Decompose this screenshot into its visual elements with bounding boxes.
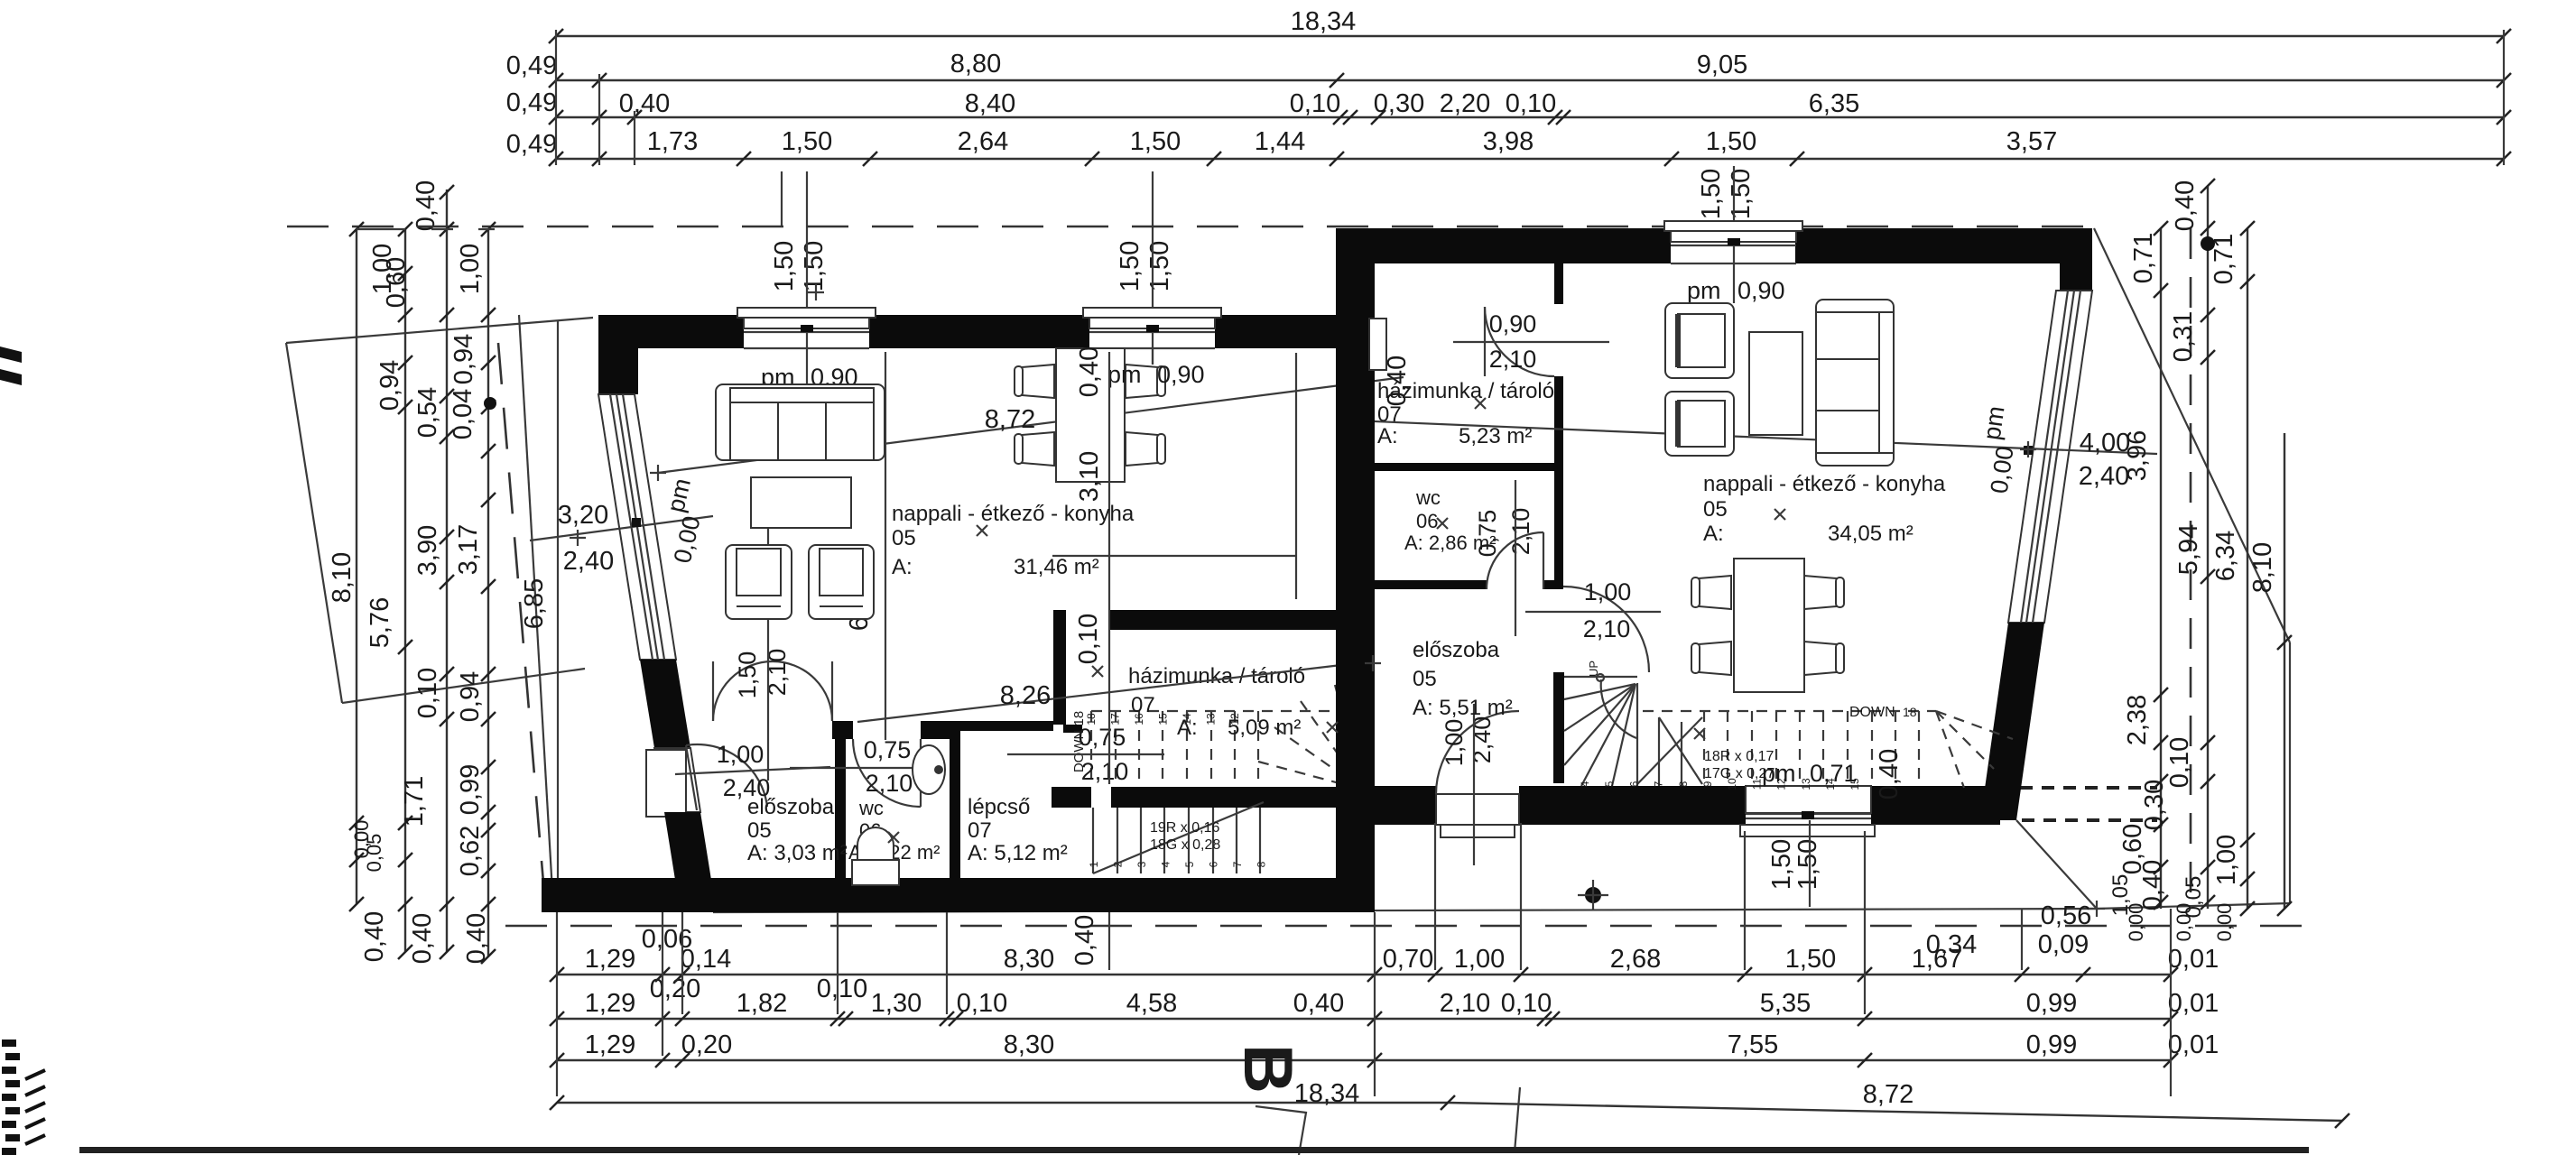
- svg-text:7,55: 7,55: [1728, 1030, 1778, 1059]
- svg-text:lépcső: lépcső: [968, 795, 1030, 819]
- svg-text:6,35: 6,35: [1809, 89, 1859, 118]
- svg-text:2,10: 2,10: [1489, 346, 1537, 373]
- svg-text:3,98: 3,98: [1483, 127, 1534, 156]
- svg-text:0,00: 0,00: [2213, 903, 2236, 942]
- svg-text:5: 5: [1603, 781, 1616, 787]
- svg-text:0,04: 0,04: [449, 389, 477, 439]
- svg-text:4: 4: [1579, 781, 1591, 787]
- svg-text:0,09: 0,09: [2038, 930, 2089, 959]
- svg-text:1,00: 1,00: [1441, 719, 1468, 767]
- svg-text:7: 7: [1231, 861, 1244, 867]
- svg-text:0,49: 0,49: [506, 130, 557, 159]
- svg-text:1,29: 1,29: [585, 945, 635, 974]
- svg-text:0,60: 0,60: [382, 257, 411, 308]
- svg-text:0,10: 0,10: [1290, 89, 1340, 118]
- svg-text:0,01: 0,01: [2168, 1030, 2219, 1059]
- svg-text:3,10: 3,10: [1075, 451, 1104, 502]
- svg-text:0,10: 0,10: [413, 668, 442, 718]
- svg-text:1,00: 1,00: [456, 244, 485, 294]
- svg-text:8,80: 8,80: [950, 50, 1001, 79]
- svg-text:A:: A:: [1703, 522, 1724, 546]
- svg-text:1,00: 1,00: [2212, 835, 2241, 885]
- svg-text:2,10: 2,10: [866, 770, 913, 797]
- svg-text:8: 8: [1677, 781, 1690, 787]
- svg-text:07: 07: [1131, 693, 1155, 717]
- svg-text:05: 05: [747, 818, 772, 843]
- svg-text:0,71: 0,71: [1810, 760, 1858, 787]
- svg-text:4: 4: [1160, 861, 1172, 867]
- svg-text:pm: pm: [1687, 277, 1721, 304]
- svg-text:8: 8: [1256, 861, 1268, 867]
- svg-text:0,01: 0,01: [2168, 989, 2219, 1018]
- svg-text:1,50: 1,50: [1130, 127, 1181, 156]
- svg-text:1,50: 1,50: [770, 241, 799, 291]
- svg-text:házimunka / tároló: házimunka / tároló: [1128, 664, 1305, 688]
- svg-text:5,09 m²: 5,09 m²: [1228, 716, 1301, 740]
- svg-text:0,71: 0,71: [2129, 233, 2158, 283]
- svg-text:A:: A:: [1377, 424, 1398, 448]
- svg-text:1,50: 1,50: [1767, 839, 1796, 890]
- svg-text:1,67: 1,67: [1912, 945, 1962, 974]
- svg-text:1,50: 1,50: [734, 651, 761, 699]
- svg-text:9: 9: [1701, 781, 1714, 787]
- svg-text:4,58: 4,58: [1126, 989, 1177, 1018]
- svg-text:2,20: 2,20: [1440, 89, 1490, 118]
- svg-text:0,31: 0,31: [2169, 311, 2198, 362]
- svg-text:1,29: 1,29: [585, 1030, 635, 1059]
- svg-text:8,10: 8,10: [2248, 542, 2277, 593]
- svg-text:1,50: 1,50: [1145, 241, 1174, 291]
- svg-text:0,40: 0,40: [1075, 346, 1104, 397]
- svg-text:0,00: 0,00: [2173, 903, 2195, 942]
- svg-text:8,26: 8,26: [1000, 681, 1051, 710]
- svg-text:15: 15: [1157, 713, 1170, 725]
- svg-text:13: 13: [1205, 713, 1218, 725]
- svg-text:0,10: 0,10: [957, 989, 1007, 1018]
- svg-text:0,99: 0,99: [456, 764, 485, 815]
- svg-text:1,50: 1,50: [1116, 241, 1144, 291]
- svg-text:0,14: 0,14: [681, 945, 731, 974]
- svg-text:1,00: 1,00: [1454, 945, 1505, 974]
- svg-text:A: 2,86 m²: A: 2,86 m²: [1404, 531, 1496, 554]
- svg-text:0,40: 0,40: [462, 913, 491, 964]
- svg-text:3,17: 3,17: [454, 524, 483, 575]
- svg-text:3,96: 3,96: [2123, 430, 2152, 481]
- svg-text:0,40: 0,40: [1293, 989, 1344, 1018]
- svg-text:0,40: 0,40: [619, 89, 670, 118]
- svg-text:0,40: 0,40: [1875, 749, 1904, 799]
- svg-text:0,10: 0,10: [1501, 989, 1552, 1018]
- svg-text:07: 07: [968, 818, 992, 843]
- svg-text:6,34: 6,34: [2211, 531, 2240, 581]
- svg-text:05: 05: [1703, 497, 1728, 522]
- svg-text:0,20: 0,20: [681, 1030, 732, 1059]
- svg-text:8,30: 8,30: [1004, 1030, 1054, 1059]
- svg-text:A:: A:: [892, 555, 913, 579]
- svg-text:1,00: 1,00: [717, 741, 764, 768]
- svg-text:pm: pm: [1978, 404, 2010, 441]
- svg-text:0,10: 0,10: [2165, 737, 2194, 788]
- svg-text:nappali - étkező - konyha: nappali - étkező - konyha: [1703, 472, 1946, 496]
- svg-text:1,50: 1,50: [1697, 169, 1726, 219]
- svg-text:0,40: 0,40: [412, 180, 440, 231]
- svg-text:1,30: 1,30: [871, 989, 922, 1018]
- svg-text:2,38: 2,38: [2123, 695, 2152, 745]
- svg-text:előszoba: előszoba: [747, 795, 835, 819]
- svg-text:0,10: 0,10: [817, 975, 867, 1003]
- svg-text:8,30: 8,30: [1004, 945, 1054, 974]
- svg-text:8,72: 8,72: [1863, 1080, 1913, 1109]
- svg-text:6: 6: [1208, 861, 1220, 867]
- svg-text:6: 6: [1627, 781, 1640, 787]
- svg-text:34,05 m²: 34,05 m²: [1828, 522, 1913, 546]
- svg-text:előszoba: előszoba: [1413, 638, 1500, 662]
- svg-text:19R x 0,16: 19R x 0,16: [1150, 820, 1219, 836]
- svg-text:0,49: 0,49: [506, 88, 557, 117]
- svg-text:0,94: 0,94: [375, 360, 404, 411]
- svg-text:5,94: 5,94: [2174, 524, 2203, 575]
- svg-text:05: 05: [892, 526, 916, 550]
- svg-text:8,40: 8,40: [965, 89, 1015, 118]
- svg-text:DOWN: DOWN: [1849, 705, 1895, 720]
- svg-text:1,82: 1,82: [737, 989, 787, 1018]
- svg-text:0,10: 0,10: [1506, 89, 1556, 118]
- svg-text:B: B: [1229, 1044, 1306, 1094]
- svg-text:0,90: 0,90: [1489, 310, 1537, 337]
- svg-text:2,40: 2,40: [1469, 716, 1496, 764]
- svg-text:1,44: 1,44: [1255, 127, 1305, 156]
- svg-text:3,57: 3,57: [2006, 127, 2057, 156]
- svg-text:2,64: 2,64: [958, 127, 1008, 156]
- svg-text:wc: wc: [1415, 486, 1441, 509]
- svg-text:0,30: 0,30: [1374, 89, 1424, 118]
- svg-text:2,10: 2,10: [1507, 508, 1534, 556]
- svg-text:06: 06: [1416, 510, 1438, 532]
- svg-text:0,54: 0,54: [413, 387, 442, 438]
- svg-text:18,34: 18,34: [1291, 7, 1357, 36]
- svg-text:0,62: 0,62: [456, 826, 485, 876]
- svg-text:0,10: 0,10: [1074, 614, 1103, 664]
- svg-text:pm: pm: [1107, 361, 1142, 388]
- svg-text:2,10: 2,10: [1081, 758, 1129, 785]
- svg-text:1,73: 1,73: [647, 127, 698, 156]
- svg-text:1,50: 1,50: [1706, 127, 1756, 156]
- svg-text:05: 05: [1413, 667, 1437, 691]
- svg-text:A: 5,12 m²: A: 5,12 m²: [968, 841, 1068, 865]
- svg-text:1,00: 1,00: [1584, 578, 1632, 605]
- svg-text:5,76: 5,76: [366, 597, 394, 648]
- svg-text:2,40: 2,40: [2079, 462, 2129, 491]
- svg-text:0,75: 0,75: [864, 736, 912, 763]
- svg-text:0,75: 0,75: [1079, 724, 1126, 751]
- svg-text:3,90: 3,90: [413, 525, 442, 576]
- svg-text:pm: pm: [1762, 760, 1796, 787]
- svg-text:1,50: 1,50: [1785, 945, 1836, 974]
- svg-text:5: 5: [1183, 861, 1196, 867]
- svg-text:A: 5,51 m²: A: 5,51 m²: [1413, 696, 1513, 720]
- svg-text:31,46 m²: 31,46 m²: [1014, 555, 1099, 579]
- svg-text:0,40: 0,40: [408, 913, 437, 964]
- svg-text:1,71: 1,71: [400, 776, 429, 827]
- svg-text:1,50: 1,50: [782, 127, 832, 156]
- svg-text:1,50: 1,50: [800, 241, 829, 291]
- svg-text:0,49: 0,49: [506, 51, 557, 80]
- svg-text:0,90: 0,90: [1737, 277, 1785, 304]
- svg-text:18G x 0,28: 18G x 0,28: [1150, 837, 1220, 853]
- svg-text:0,56: 0,56: [2041, 901, 2091, 930]
- svg-text:nappali - étkező - konyha: nappali - étkező - konyha: [892, 502, 1135, 526]
- svg-text:0,90: 0,90: [1157, 361, 1205, 388]
- svg-text:0,40: 0,40: [360, 911, 389, 962]
- svg-text:UP: UP: [1587, 661, 1600, 677]
- svg-text:2: 2: [1112, 861, 1125, 867]
- svg-text:18: 18: [1903, 705, 1917, 719]
- svg-text:7: 7: [1653, 781, 1665, 787]
- svg-text:8,72: 8,72: [985, 405, 1035, 434]
- svg-text:0,94: 0,94: [456, 671, 485, 722]
- svg-text:0,00: 0,00: [2125, 903, 2147, 942]
- svg-text:A:: A:: [1177, 716, 1198, 740]
- svg-text:9,05: 9,05: [1697, 51, 1747, 79]
- svg-text:0,05: 0,05: [363, 834, 385, 873]
- svg-text:0,70: 0,70: [1383, 945, 1433, 974]
- svg-text:8,10: 8,10: [328, 552, 357, 603]
- svg-text:0,40: 0,40: [1383, 356, 1412, 406]
- svg-text:0,99: 0,99: [2026, 1030, 2077, 1059]
- svg-text:A: 3,03 m²: A: 3,03 m²: [747, 841, 848, 865]
- svg-text:2,10: 2,10: [1440, 989, 1490, 1018]
- svg-text:1: 1: [1088, 861, 1100, 867]
- svg-text:1,50: 1,50: [1727, 169, 1756, 219]
- svg-text:1,29: 1,29: [585, 989, 635, 1018]
- svg-text:3: 3: [1135, 861, 1148, 867]
- svg-text:0,40: 0,40: [1070, 915, 1099, 966]
- svg-text:2,40: 2,40: [563, 547, 614, 576]
- svg-text:5,35: 5,35: [1760, 989, 1811, 1018]
- svg-text:3,20: 3,20: [558, 501, 608, 530]
- svg-text:0,40: 0,40: [2171, 180, 2200, 231]
- svg-text:1,50: 1,50: [1793, 839, 1822, 890]
- svg-text:2,68: 2,68: [1610, 945, 1661, 974]
- svg-text:0,99: 0,99: [2026, 989, 2077, 1018]
- svg-text:2,10: 2,10: [1583, 615, 1631, 642]
- svg-text:6,85: 6,85: [520, 578, 549, 629]
- svg-text:0,94: 0,94: [449, 334, 478, 384]
- svg-text:wc: wc: [858, 797, 884, 819]
- svg-text:0,01: 0,01: [2168, 945, 2219, 974]
